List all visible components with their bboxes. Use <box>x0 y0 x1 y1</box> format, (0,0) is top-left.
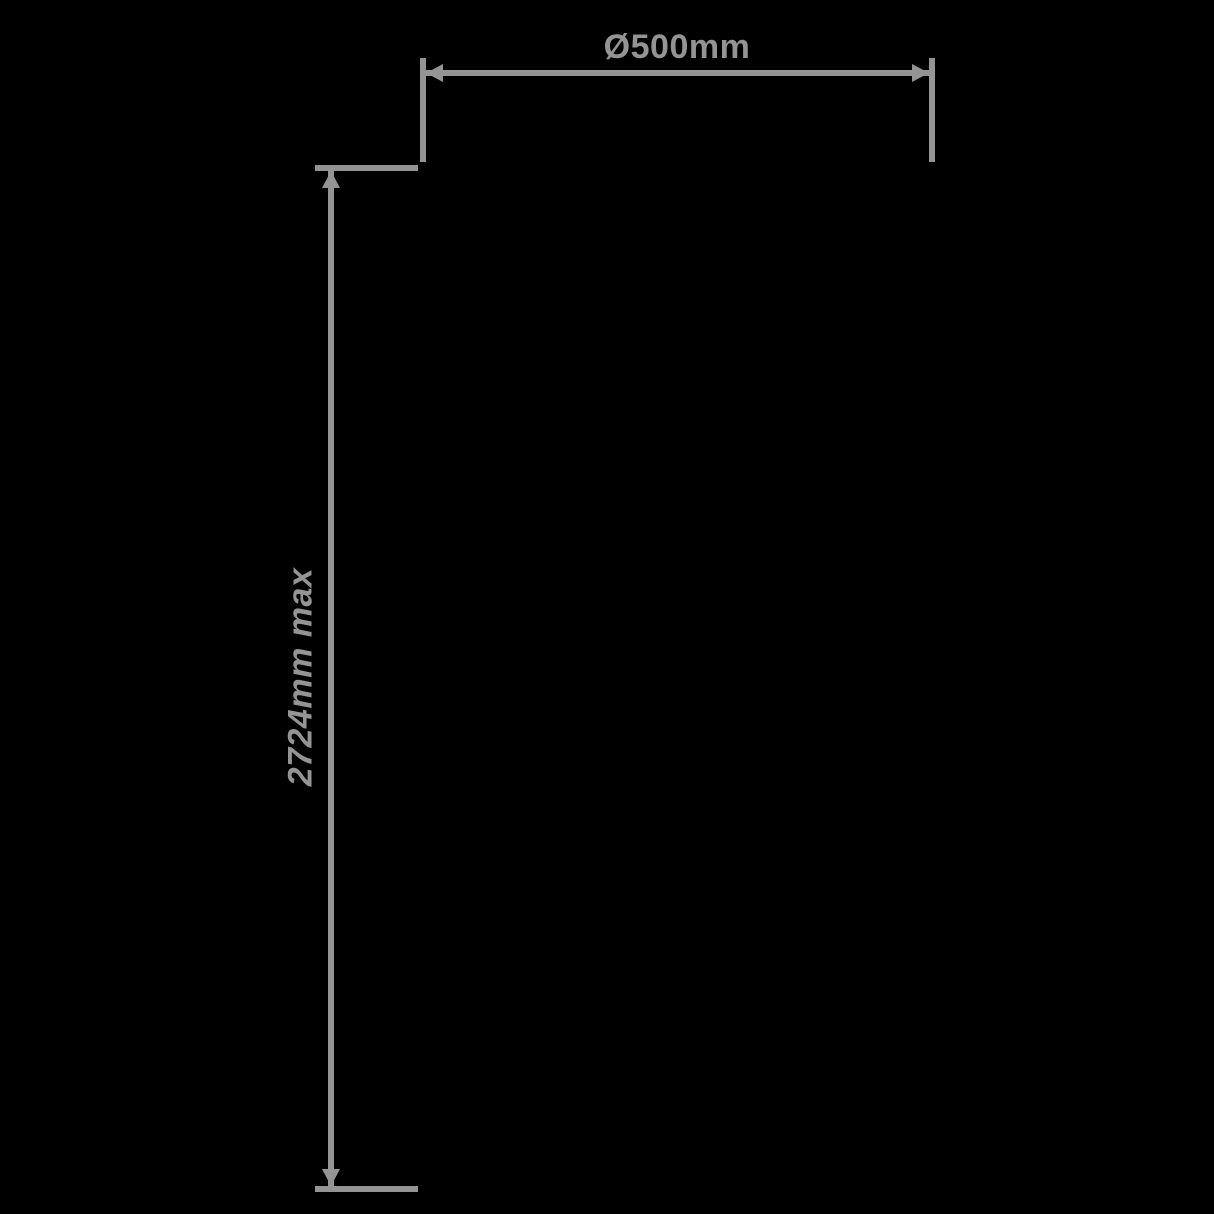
arrowhead-down-icon <box>322 1169 340 1186</box>
arrowhead-right-icon <box>912 64 929 82</box>
height-extension-line-bottom <box>315 1186 418 1192</box>
arrowhead-left-icon <box>426 64 443 82</box>
arrowhead-up-icon <box>322 171 340 188</box>
height-dimension-line <box>328 171 334 1186</box>
diameter-dimension-label: Ø500mm <box>604 28 751 67</box>
dimension-diagram: Ø500mm 2724mm max <box>0 0 1214 1214</box>
diameter-dimension-line <box>426 70 929 76</box>
height-dimension-label: 2724mm max <box>282 568 321 787</box>
diameter-extension-line-right <box>929 58 935 162</box>
